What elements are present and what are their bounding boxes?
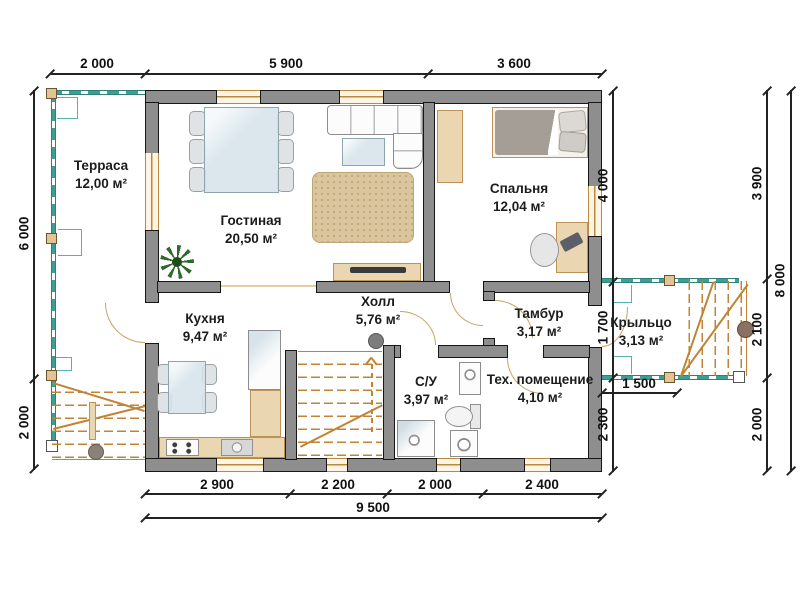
wall-living-hall xyxy=(316,281,450,293)
wall-top xyxy=(383,90,602,104)
wall-bottom xyxy=(263,458,327,472)
terrace-bracket xyxy=(56,357,72,371)
dim-bottom-2: 2 200 xyxy=(296,477,380,492)
window-kitchen-bottom xyxy=(217,458,263,472)
wall-left xyxy=(145,102,159,154)
dim-right-total: 8 000 xyxy=(773,239,788,323)
sofa-chaise xyxy=(393,133,423,169)
dim-outer-top: 3 900 xyxy=(750,142,765,226)
dim-line-porch xyxy=(602,392,677,394)
window-living-top-1 xyxy=(217,90,260,104)
wall-living-bedroom xyxy=(423,102,435,282)
room-area: 12,04 м² xyxy=(449,198,589,216)
room-area: 3,13 м² xyxy=(571,332,711,350)
dim-line-bottom xyxy=(145,493,602,495)
dining-chair xyxy=(277,167,294,192)
wall-bottom xyxy=(347,458,437,472)
stairs-newel-post xyxy=(368,333,384,349)
pillow xyxy=(558,131,587,153)
room-name: Терраса xyxy=(31,157,171,175)
kitchen-table xyxy=(168,361,206,414)
wall-bath-top xyxy=(438,345,508,358)
bed-fold xyxy=(548,110,558,155)
desk-chair xyxy=(530,233,559,267)
room-name: Крыльцо xyxy=(571,314,711,332)
railing-post xyxy=(46,88,57,99)
room-name: Гостиная xyxy=(181,212,321,230)
terrace-railing-top xyxy=(50,90,145,95)
railing-post xyxy=(664,275,675,286)
room-area: 9,47 м² xyxy=(135,328,275,346)
dining-chair xyxy=(277,111,294,136)
room-label-porch: Крыльцо 3,13 м² xyxy=(571,314,711,349)
stairs-stringer xyxy=(89,402,96,440)
dim-line-right-outer xyxy=(766,90,768,472)
dim-top-living: 5 900 xyxy=(244,56,328,71)
plant-center xyxy=(172,257,182,267)
room-area: 12,00 м² xyxy=(31,175,171,193)
wardrobe xyxy=(437,110,463,183)
window-tech-bottom xyxy=(525,458,550,472)
passage-threshold xyxy=(221,285,316,287)
window-living-top-2 xyxy=(340,90,383,104)
room-name: Холл xyxy=(308,293,448,311)
room-area: 20,50 м² xyxy=(181,230,321,248)
dim-line-bottom-total xyxy=(145,517,602,519)
carpet xyxy=(312,172,414,243)
dim-porch-width: 1 500 xyxy=(597,376,681,391)
room-area: 4,10 м² xyxy=(470,389,610,407)
wall-bottom xyxy=(550,458,602,472)
railing-post xyxy=(46,233,57,244)
room-label-hall: Холл 5,76 м² xyxy=(308,293,448,328)
wall-tambour-left xyxy=(483,291,495,301)
porch-bracket xyxy=(612,285,632,303)
room-name: Тех. помещение xyxy=(470,371,610,389)
washing-machine xyxy=(450,430,478,457)
room-name: Кухня xyxy=(135,310,275,328)
wall-kitchen-stairs xyxy=(285,350,297,460)
dim-outer-bottom: 2 000 xyxy=(750,383,765,467)
dim-bottom-3: 2 000 xyxy=(393,477,477,492)
bed-blanket xyxy=(495,110,555,155)
dim-outer-porch: 2 100 xyxy=(750,288,765,372)
dim-line-right-total xyxy=(790,90,792,472)
dim-top-terrace: 2 000 xyxy=(55,56,139,71)
sofa xyxy=(327,105,423,135)
terrace-bracket xyxy=(57,97,78,119)
room-label-living: Гостиная 20,50 м² xyxy=(181,212,321,247)
dim-right-bedroom: 4 000 xyxy=(596,144,611,228)
room-label-tech: Тех. помещение 4,10 м² xyxy=(470,371,610,406)
terrace-stair-post xyxy=(88,444,104,460)
kitchen-counter-side xyxy=(250,390,281,437)
dining-table xyxy=(204,107,279,193)
dim-left-stairs: 2 000 xyxy=(17,381,32,465)
pillow xyxy=(558,110,587,134)
floor-plan: Терраса 12,00 м² Гостиная 20,50 м² Спаль… xyxy=(0,0,800,600)
room-name: Спальня xyxy=(449,180,589,198)
dim-right-entry: 1 700 xyxy=(596,286,611,370)
dim-line-left xyxy=(33,90,35,470)
dim-bottom-1: 2 900 xyxy=(175,477,259,492)
dining-chair xyxy=(277,139,294,164)
porch-bracket xyxy=(612,356,632,374)
tv xyxy=(350,267,406,273)
terrace-bracket xyxy=(58,229,82,256)
dim-line-top xyxy=(50,73,602,75)
railing-post-end xyxy=(733,371,745,383)
window-stairs-bottom xyxy=(327,458,347,472)
room-label-bedroom: Спальня 12,04 м² xyxy=(449,180,589,215)
room-label-kitchen: Кухня 9,47 м² xyxy=(135,310,275,345)
wall-bedroom-tambour xyxy=(483,281,590,293)
kitchen-sink xyxy=(221,439,253,456)
coffee-table xyxy=(342,138,385,166)
wall-living-kitchen xyxy=(157,281,221,293)
stove xyxy=(166,439,199,456)
room-label-terrace: Терраса 12,00 м² xyxy=(31,157,171,192)
dim-bottom-4: 2 400 xyxy=(500,477,584,492)
dim-bottom-total: 9 500 xyxy=(331,500,415,515)
toilet-bowl xyxy=(445,406,473,427)
dim-top-bedroom: 3 600 xyxy=(472,56,556,71)
wall-bottom xyxy=(460,458,525,472)
room-area: 5,76 м² xyxy=(308,311,448,329)
wall-bottom xyxy=(145,458,217,472)
window-bath-bottom xyxy=(437,458,460,472)
dim-left-terrace: 6 000 xyxy=(17,192,32,276)
shower xyxy=(397,420,435,457)
wall-top xyxy=(260,90,340,104)
